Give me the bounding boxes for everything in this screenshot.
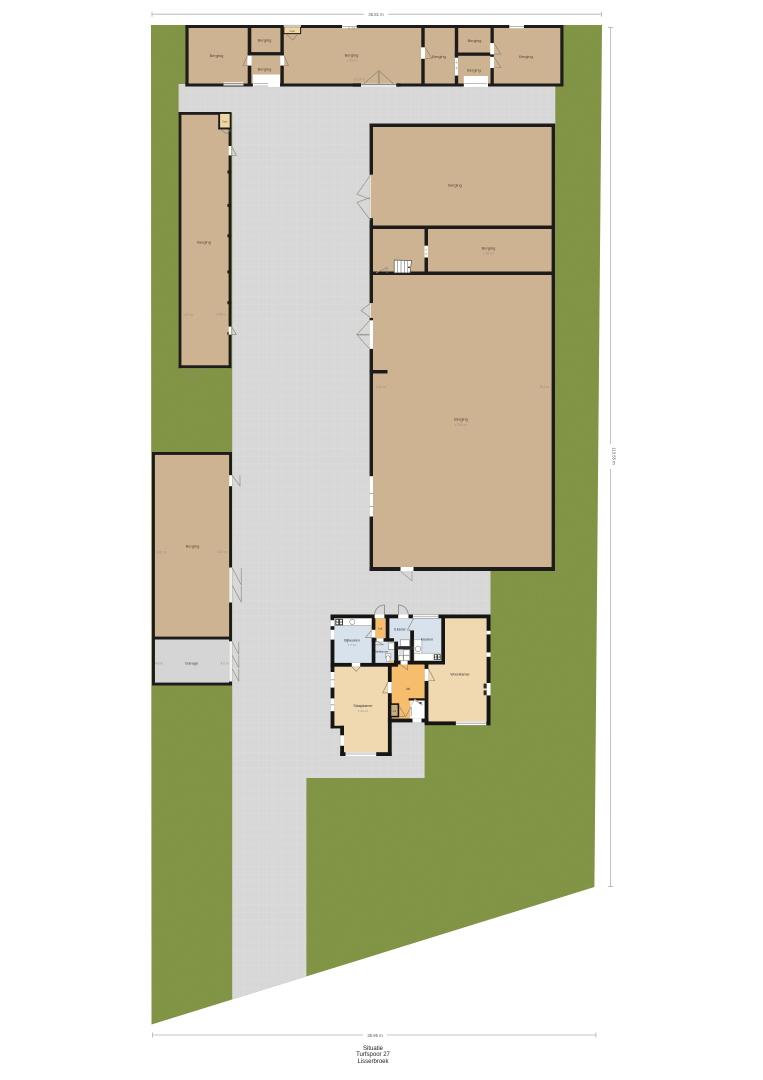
- svg-text:35.95 m: 35.95 m: [367, 1033, 383, 1038]
- svg-text:Badkamer: Badkamer: [375, 650, 389, 654]
- svg-text:Berging: Berging: [468, 38, 482, 43]
- svg-text:hal: hal: [378, 627, 382, 631]
- svg-text:4.97 m: 4.97 m: [183, 313, 193, 317]
- svg-text:Slaapkamer: Slaapkamer: [353, 704, 373, 708]
- svg-text:36.81 m: 36.81 m: [368, 12, 384, 17]
- svg-text:Kast: Kast: [290, 29, 295, 33]
- svg-text:Berging: Berging: [197, 240, 211, 245]
- svg-text:Berging: Berging: [467, 68, 481, 73]
- svg-text:Keuken: Keuken: [421, 638, 433, 642]
- svg-text:Berging: Berging: [454, 417, 468, 422]
- svg-text:4.6 m: 4.6 m: [221, 662, 229, 666]
- svg-text:S.kamer: S.kamer: [394, 628, 407, 632]
- svg-text:113.55 m: 113.55 m: [612, 447, 617, 465]
- svg-text:6.45 m: 6.45 m: [376, 385, 386, 389]
- svg-text:Berging: Berging: [482, 246, 496, 251]
- svg-text:Woonkamer: Woonkamer: [450, 673, 470, 677]
- svg-text:10.14 m: 10.14 m: [353, 78, 365, 82]
- svg-text:± 282 m²: ± 282 m²: [455, 423, 468, 427]
- svg-text:Berging: Berging: [519, 54, 533, 59]
- svg-text:± 59 m²: ± 59 m²: [483, 252, 494, 256]
- svg-text:Berging: Berging: [258, 67, 272, 72]
- svg-text:± 95 m²: ± 95 m²: [347, 59, 358, 63]
- svg-text:14.9 m: 14.9 m: [217, 550, 227, 554]
- svg-text:Berging: Berging: [186, 544, 200, 549]
- svg-text:Bijkeuken: Bijkeuken: [344, 639, 360, 643]
- svg-text:4.95 m: 4.95 m: [216, 312, 226, 316]
- svg-text:Kast: Kast: [222, 120, 227, 124]
- svg-text:11.98 m: 11.98 m: [347, 26, 359, 30]
- svg-text:Berging: Berging: [258, 38, 272, 43]
- svg-text:4.81 m: 4.81 m: [157, 551, 167, 555]
- svg-text:hal: hal: [406, 687, 411, 691]
- svg-text:Lisserbroek: Lisserbroek: [357, 1059, 389, 1065]
- svg-text:Berging: Berging: [210, 53, 224, 58]
- svg-text:Garage: Garage: [185, 661, 199, 666]
- svg-text:Turfspoor 27: Turfspoor 27: [356, 1052, 390, 1058]
- svg-text:18.2 m: 18.2 m: [539, 385, 549, 389]
- svg-text:Berging: Berging: [432, 54, 446, 59]
- svg-text:Berging: Berging: [448, 183, 462, 188]
- svg-text:± 21 m²: ± 21 m²: [358, 709, 368, 713]
- svg-text:Berging: Berging: [345, 53, 359, 58]
- svg-text:Situatie: Situatie: [363, 1046, 384, 1052]
- svg-text:4.6 m: 4.6 m: [155, 662, 163, 666]
- svg-text:± 7 m²: ± 7 m²: [348, 643, 356, 647]
